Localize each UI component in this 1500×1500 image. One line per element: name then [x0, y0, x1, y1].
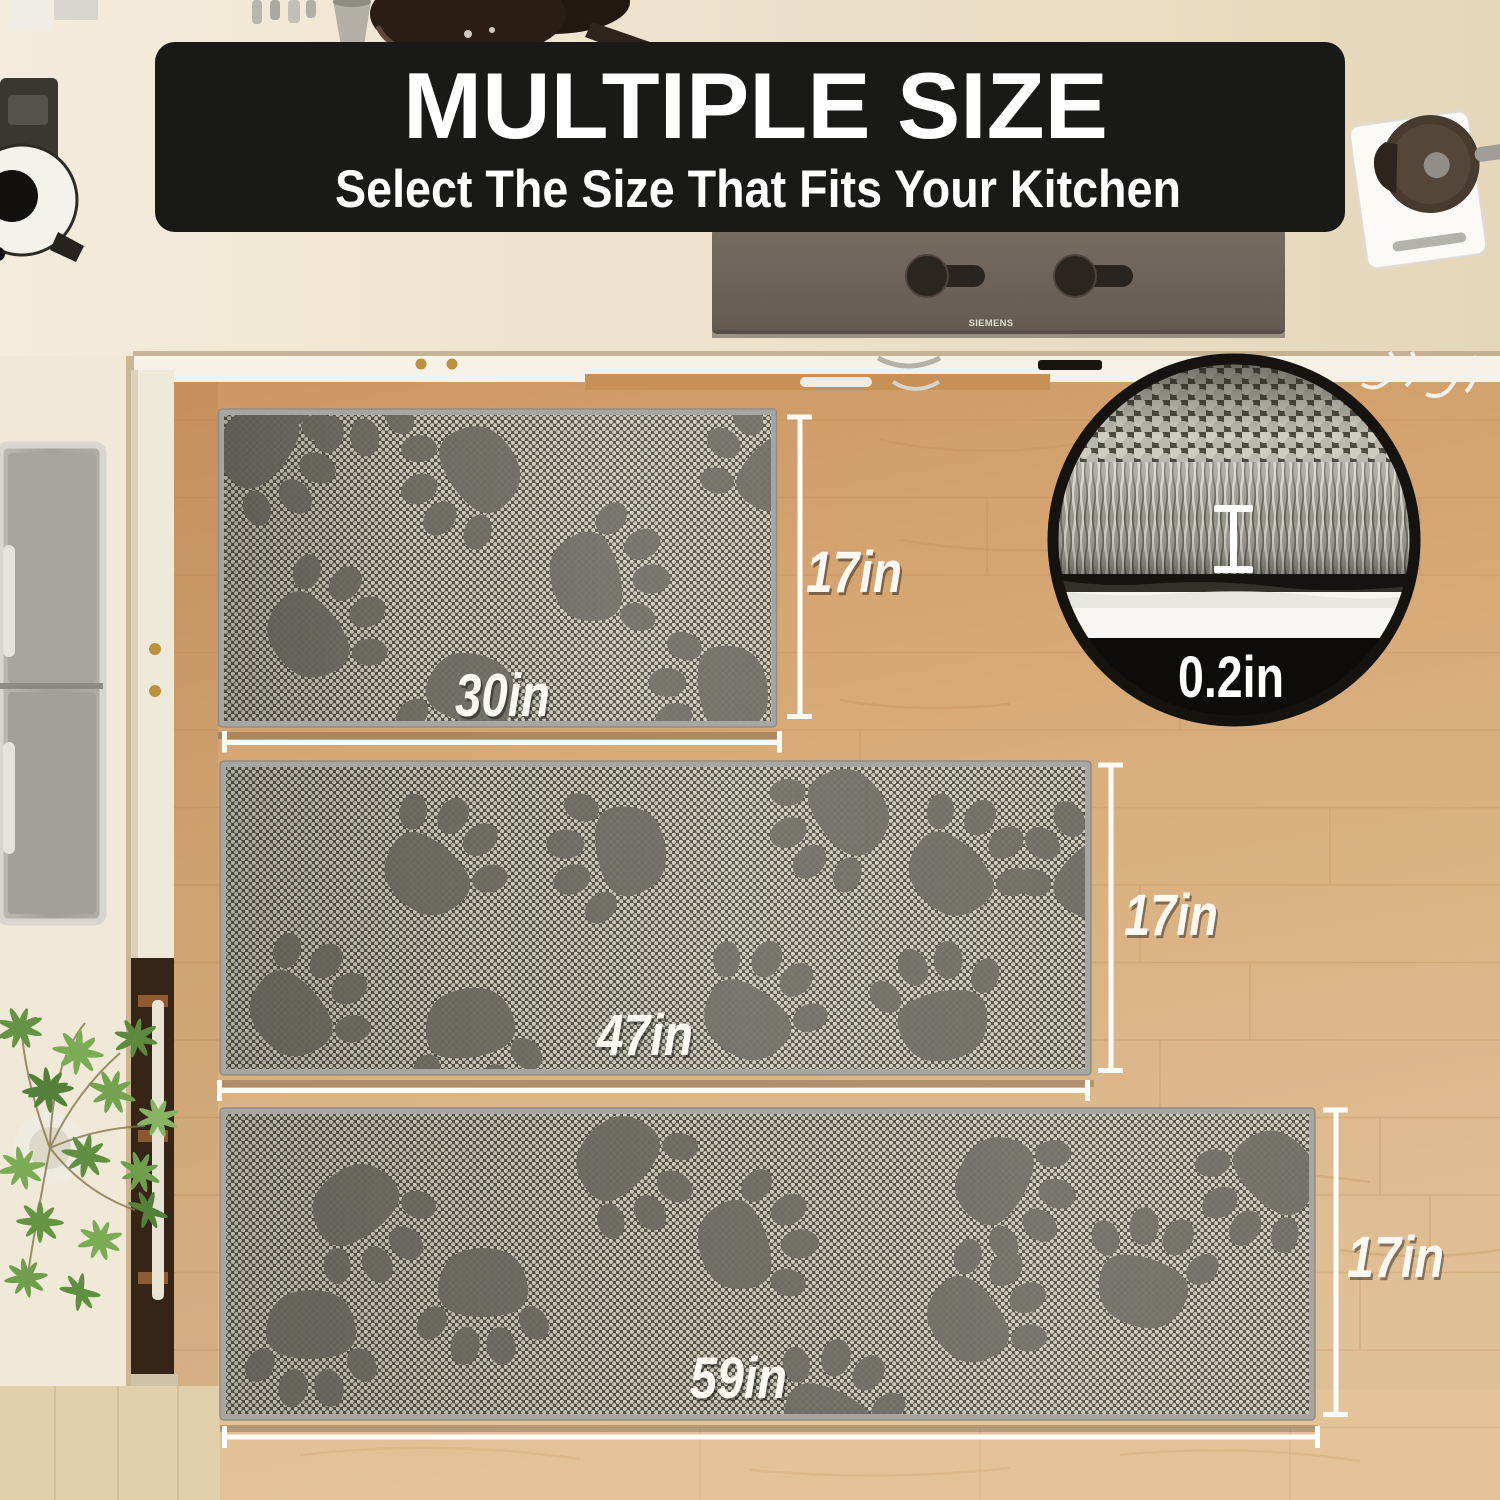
svg-text:MULTIPLE SIZE: MULTIPLE SIZE [403, 53, 1108, 158]
svg-text:SIEMENS: SIEMENS [969, 318, 1014, 329]
svg-text:17in: 17in [1124, 883, 1218, 948]
svg-text:59in: 59in [690, 1346, 787, 1411]
svg-text:Select The Size That Fits Your: Select The Size That Fits Your Kitchen [335, 160, 1181, 219]
svg-text:0.2in: 0.2in [1178, 645, 1284, 710]
svg-text:17in: 17in [1347, 1225, 1444, 1290]
svg-text:17in: 17in [806, 540, 902, 605]
svg-text:30in: 30in [455, 662, 550, 729]
svg-text:47in: 47in [596, 1003, 693, 1068]
